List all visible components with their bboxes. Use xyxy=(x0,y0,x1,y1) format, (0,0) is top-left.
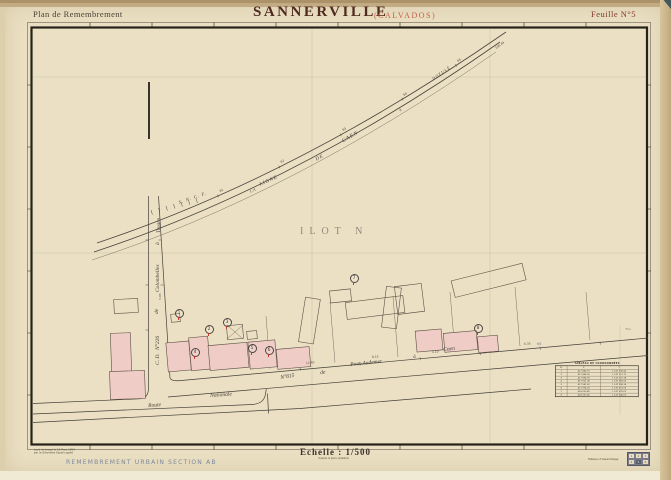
surveyor-note: Levé et dressé le 15 Mars 1954 par le Gé… xyxy=(34,449,75,455)
cd-road-word-de: de xyxy=(154,309,160,314)
railway-point-numbers: 61 62 63 64 65 100.44 xyxy=(219,40,505,192)
railway-lines xyxy=(92,32,506,260)
scale-note: d'après le plan cadastral xyxy=(318,457,349,460)
parcel-red-tick xyxy=(194,356,195,359)
note-66: 66 xyxy=(537,342,541,346)
n815-word-a: à xyxy=(413,355,416,360)
assemblage-cell: 4 xyxy=(628,459,635,465)
parcel-red-tick xyxy=(251,352,252,355)
n815-word-caen: Caen xyxy=(443,346,455,353)
parcel-red-tick xyxy=(178,317,179,320)
cd-road-word-colombelles: Colombelles xyxy=(155,265,161,293)
cd-road-word-a: à xyxy=(155,242,161,245)
parcel-red-tick xyxy=(268,354,269,357)
parcel-number-circle: 3 xyxy=(223,318,232,327)
note-35a: 35a xyxy=(625,327,631,331)
parcel-number-circle: 4 xyxy=(191,348,200,357)
cd-road-word-troarn: Troarn xyxy=(156,218,162,233)
svg-text:100.44: 100.44 xyxy=(494,40,505,49)
parcel-red-tick xyxy=(477,332,478,335)
svg-text:62: 62 xyxy=(280,159,285,164)
cd-road-word-cd: C. D. xyxy=(155,353,161,365)
parcel-number-circle: 2 xyxy=(205,325,214,334)
scanned-map-sheet: Plan de Remembrement SANNERVILLE (CALVAD… xyxy=(0,0,671,480)
section-label: REMEMBREMENT URBAIN SECTION AB xyxy=(66,459,217,466)
scale-label: Echelle : 1/500 xyxy=(300,447,371,457)
svg-text:3.95: 3.95 xyxy=(158,293,162,300)
parcel-boundaries xyxy=(266,287,590,368)
parcel-number-circle: 1 xyxy=(175,309,184,318)
svg-text:12.40: 12.40 xyxy=(306,360,315,365)
assemblage-label: Tableau d'assemblage xyxy=(588,458,618,461)
assemblage-cell: 6 xyxy=(642,459,649,465)
svg-text:6.35: 6.35 xyxy=(524,341,531,346)
cd-road-word-n226: N°226 xyxy=(155,336,161,350)
coord-row: 8418 027.401 147 344.50 xyxy=(555,393,638,397)
parcel-red-tick xyxy=(353,282,354,285)
parcel-number-circle: 6 xyxy=(265,346,274,355)
n815-word-de: de xyxy=(320,369,326,376)
parcel-number-circle: 7 xyxy=(350,274,359,283)
coordinates-table-title: TABLEAU DE COORDONNÉES xyxy=(555,362,639,365)
buildings xyxy=(110,263,527,399)
assemblage-cell-current-sheet: 5 xyxy=(635,459,642,465)
svg-text:4.10: 4.10 xyxy=(432,349,439,354)
svg-text:61: 61 xyxy=(219,188,224,193)
svg-text:63: 63 xyxy=(342,126,347,131)
parcel-red-tick xyxy=(208,333,209,336)
coordinates-table: TABLEAU DE COORDONNÉES N° X Y 1417 842.1… xyxy=(555,362,645,465)
parcel-red-tick xyxy=(226,326,227,329)
parcel-number-circle: 8 xyxy=(474,324,483,333)
parcel-number-circle: 5 xyxy=(248,344,257,353)
route-nationale-word-route: Route xyxy=(148,402,161,409)
ilot-label: ILOT N xyxy=(300,226,368,237)
assemblage-grid: 1 2 3 4 5 6 xyxy=(627,452,650,466)
